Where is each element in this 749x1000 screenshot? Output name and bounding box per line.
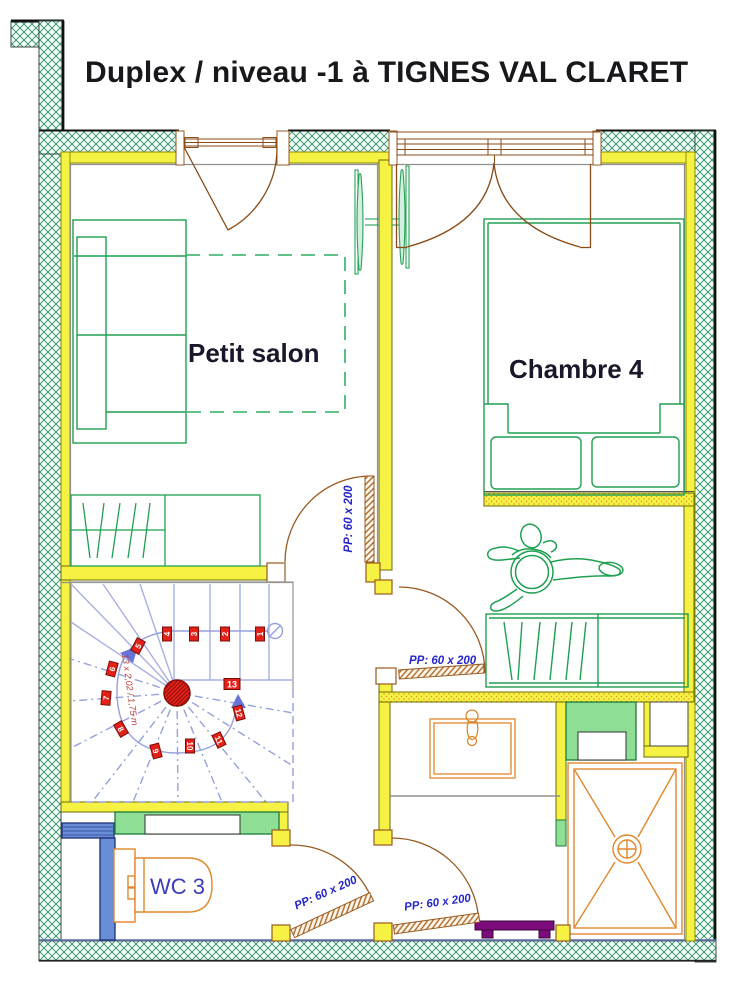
svg-text:Petit salon: Petit salon <box>188 338 319 368</box>
svg-text:WC 3: WC 3 <box>150 874 205 899</box>
svg-text:4: 4 <box>163 631 172 636</box>
svg-text:PP: 60 x 200: PP: 60 x 200 <box>409 655 477 667</box>
svg-text:2: 2 <box>221 631 230 636</box>
svg-text:1: 1 <box>256 631 265 636</box>
svg-text:Duplex / niveau -1 à TIGNES V: Duplex / niveau -1 à TIGNES VAL CLARET <box>85 56 688 89</box>
svg-text:3: 3 <box>190 631 199 636</box>
svg-text:13: 13 <box>227 680 237 690</box>
svg-text:10: 10 <box>185 742 194 751</box>
svg-text:Chambre 4: Chambre 4 <box>509 354 644 384</box>
svg-text:PP: 60 x 200: PP: 60 x 200 <box>343 485 355 553</box>
